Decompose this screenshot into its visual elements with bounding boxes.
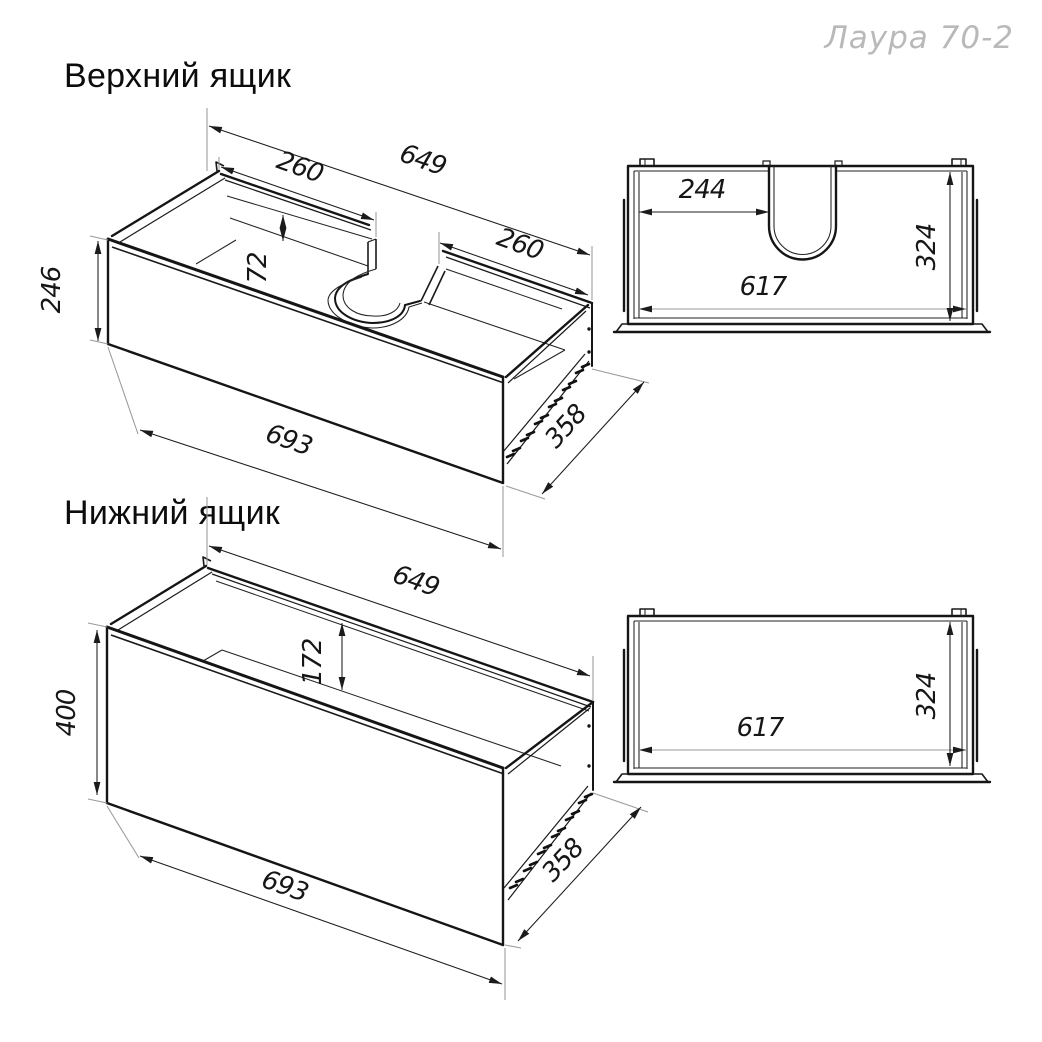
back-wall-left-section xyxy=(196,174,372,266)
left-side-wall xyxy=(111,557,212,630)
dim-value: 358 xyxy=(536,833,590,888)
dim-value: 649 xyxy=(396,139,450,183)
back-wall-right-section xyxy=(424,251,592,379)
upper-drawer-plan-view: 244 617 324 xyxy=(614,159,990,332)
screw-hole xyxy=(587,350,590,353)
dim-value: 400 xyxy=(52,689,82,736)
screw-hole xyxy=(587,764,590,767)
dim-value: 324 xyxy=(912,224,942,271)
bottom-base xyxy=(614,774,990,782)
dim-upper-right-section: 260 xyxy=(439,222,588,295)
dim-plan-inner-width: 617 xyxy=(639,272,966,309)
dim-upper-cutout-height: 72 xyxy=(243,215,283,284)
dim-value: 693 xyxy=(258,865,312,909)
dim-value: 244 xyxy=(679,175,726,205)
rail-tab xyxy=(216,162,224,171)
dim-upper-front-width: 693 xyxy=(108,347,503,557)
dim-plan-inner-depth: 324 xyxy=(912,622,950,766)
dim-plan-left-offset: 244 xyxy=(639,175,769,212)
lower-drawer-iso-view: 649 172 400 693 358 xyxy=(52,497,648,1000)
dim-value: 617 xyxy=(740,272,788,302)
dim-value: 72 xyxy=(243,252,273,283)
screw-hole xyxy=(587,724,590,727)
screw-hole xyxy=(587,327,590,330)
dim-lower-back-height: 172 xyxy=(298,623,342,690)
u-notch xyxy=(763,161,842,260)
dim-plan-inner-depth: 324 xyxy=(912,172,950,321)
dim-value: 172 xyxy=(298,639,328,686)
drawing-page: Верхний ящик Нижний ящик Лаура 70-2 xyxy=(0,0,1042,1042)
dim-upper-front-height: 246 xyxy=(37,236,108,344)
dim-value: 246 xyxy=(37,266,67,313)
dim-lower-front-height: 400 xyxy=(52,623,107,803)
dim-value: 617 xyxy=(737,713,785,743)
dim-value: 358 xyxy=(539,399,593,454)
technical-drawing-canvas: 649 260 72 260 246 xyxy=(0,0,1042,1042)
upper-drawer-iso-view: 649 260 72 260 246 xyxy=(37,108,649,557)
u-cutout-housing xyxy=(328,239,445,328)
lower-drawer-plan-view: 617 324 xyxy=(614,609,990,782)
dim-lower-back-width: 649 xyxy=(207,497,593,701)
dim-value: 649 xyxy=(389,560,443,604)
dim-value: 693 xyxy=(262,419,316,463)
dim-value: 260 xyxy=(493,222,548,266)
left-side-wall xyxy=(112,162,225,242)
dim-lower-front-width: 693 xyxy=(107,806,505,1000)
dim-value: 260 xyxy=(273,146,327,190)
dim-value: 324 xyxy=(912,673,942,720)
